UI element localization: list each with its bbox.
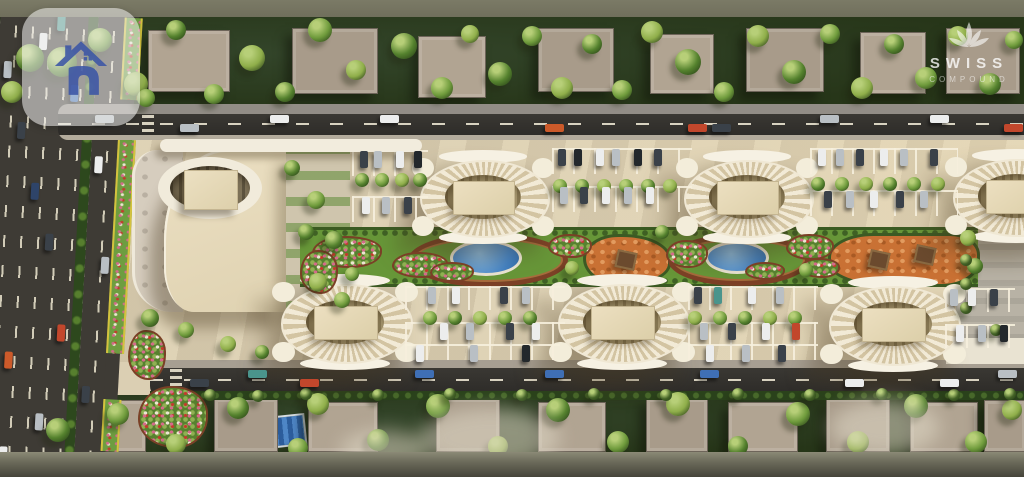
tree <box>732 388 744 400</box>
tree <box>612 80 632 100</box>
parked-car <box>742 345 750 362</box>
tree <box>334 292 350 308</box>
parked-car <box>414 151 422 168</box>
developer-logo-badge <box>22 8 140 126</box>
tree <box>345 267 359 281</box>
tree <box>346 60 366 80</box>
tree <box>960 230 976 246</box>
parked-car <box>818 149 826 166</box>
car <box>35 413 44 430</box>
tree <box>738 311 752 325</box>
car <box>688 124 707 132</box>
tree <box>431 77 453 99</box>
flower-bed <box>786 234 834 260</box>
parked-car <box>824 191 832 208</box>
tree <box>308 18 332 42</box>
parked-car <box>728 323 736 340</box>
tree <box>883 177 897 191</box>
tree <box>227 397 249 419</box>
parked-car <box>362 197 370 214</box>
parking-stalls <box>405 322 565 346</box>
flower-bed <box>745 262 785 280</box>
parked-car <box>1000 325 1008 342</box>
parked-car <box>896 191 904 208</box>
tree <box>948 389 960 401</box>
tree <box>1002 400 1022 420</box>
parked-car <box>522 287 530 304</box>
top-border-band <box>0 0 1024 17</box>
tree <box>141 309 159 327</box>
core-roof <box>591 306 655 341</box>
compound-watermark: SWISS COMPOUND <box>914 22 1024 84</box>
parked-car <box>470 345 478 362</box>
flower-bed <box>430 262 474 282</box>
parked-car <box>978 325 986 342</box>
core-roof <box>453 181 515 215</box>
car <box>1004 124 1023 132</box>
parked-car <box>452 287 460 304</box>
play-canopy <box>614 249 637 271</box>
parked-car <box>404 197 412 214</box>
tree <box>851 77 873 99</box>
tree <box>395 173 409 187</box>
parked-car <box>748 287 756 304</box>
tree <box>675 49 701 75</box>
tree <box>859 177 873 191</box>
parked-car <box>646 187 654 204</box>
car <box>998 370 1017 378</box>
crosswalk <box>170 368 182 386</box>
parked-car <box>560 187 568 204</box>
car <box>100 257 109 274</box>
parked-car <box>612 149 620 166</box>
compound-aerial-render: SWISS COMPOUND <box>0 0 1024 477</box>
tree <box>782 60 806 84</box>
parked-car <box>792 323 800 340</box>
tree <box>607 431 629 453</box>
tree <box>747 25 769 47</box>
residential-building <box>823 281 963 367</box>
tree <box>307 191 325 209</box>
parked-car <box>634 149 642 166</box>
watermark-title: SWISS <box>914 55 1024 72</box>
tree <box>255 345 269 359</box>
parked-car <box>776 287 784 304</box>
tree <box>375 173 389 187</box>
tree <box>413 173 427 187</box>
tree <box>799 263 813 277</box>
parked-car <box>596 149 604 166</box>
tree <box>372 389 384 401</box>
lane-markings <box>150 379 1024 381</box>
tree <box>786 402 810 426</box>
tree <box>204 84 224 104</box>
villa-roof <box>538 28 614 92</box>
parked-car <box>920 191 928 208</box>
roadside-hedge <box>150 391 1024 400</box>
parked-car <box>870 191 878 208</box>
parked-car <box>574 149 582 166</box>
tree <box>298 224 314 240</box>
residential-building <box>948 154 1024 238</box>
parked-car <box>694 287 702 304</box>
north-road <box>58 104 1024 140</box>
car <box>930 115 949 123</box>
car <box>45 233 54 250</box>
parked-car <box>990 289 998 306</box>
car <box>4 351 13 368</box>
sun-haze <box>830 400 940 455</box>
parked-car <box>930 149 938 166</box>
tree <box>565 261 579 275</box>
parked-car <box>506 323 514 340</box>
tree <box>660 389 672 401</box>
tree <box>275 82 295 102</box>
car <box>94 156 103 173</box>
tree <box>166 434 186 454</box>
parked-car <box>950 289 958 306</box>
flower-bed <box>548 234 592 258</box>
tree <box>1 81 23 103</box>
car <box>190 379 209 387</box>
tree <box>220 336 236 352</box>
car <box>820 115 839 123</box>
parked-car <box>532 323 540 340</box>
car <box>380 115 399 123</box>
car <box>17 122 26 139</box>
tree <box>804 389 816 401</box>
car <box>3 61 12 78</box>
parked-car <box>580 187 588 204</box>
tree <box>551 77 573 99</box>
parked-car <box>396 151 404 168</box>
parking-stalls <box>405 344 560 360</box>
tree <box>714 82 734 102</box>
parked-car <box>522 345 530 362</box>
car <box>270 115 289 123</box>
parked-car <box>466 323 474 340</box>
parking-stalls <box>552 148 692 174</box>
tree <box>546 398 570 422</box>
parked-car <box>846 191 854 208</box>
tree <box>488 62 512 86</box>
play-canopy <box>867 249 890 271</box>
bottom-border-band <box>0 452 1024 477</box>
tree <box>355 173 369 187</box>
parked-car <box>714 287 722 304</box>
tree <box>46 418 70 442</box>
tree <box>423 311 437 325</box>
parked-car <box>706 345 714 362</box>
parked-car <box>382 197 390 214</box>
tree <box>473 311 487 325</box>
play-canopy <box>913 244 936 266</box>
residential-building <box>415 155 551 239</box>
tree <box>300 388 312 400</box>
corner-wing <box>820 284 842 305</box>
tree <box>663 179 677 193</box>
parked-car <box>602 187 610 204</box>
tree <box>965 431 987 453</box>
core-roof <box>314 306 378 341</box>
parked-car <box>416 345 424 362</box>
parking-stalls <box>810 190 958 216</box>
car <box>545 370 564 378</box>
mall-core-roof <box>184 170 238 210</box>
tree <box>582 34 602 54</box>
home-n-logo-icon <box>48 30 114 102</box>
parked-car <box>880 149 888 166</box>
tree <box>835 177 849 191</box>
tree <box>876 388 888 400</box>
tree <box>655 225 669 239</box>
flower-bed <box>128 330 166 380</box>
car <box>712 124 731 132</box>
flower-bed <box>666 240 708 268</box>
parked-car <box>558 149 566 166</box>
parked-car <box>778 345 786 362</box>
parked-car <box>360 151 368 168</box>
corner-wing <box>272 282 294 303</box>
tree <box>641 21 663 43</box>
car <box>545 124 564 132</box>
parked-car <box>654 149 662 166</box>
tree <box>204 389 216 401</box>
watermark-subtitle: COMPOUND <box>914 75 1024 84</box>
car <box>845 379 864 387</box>
car <box>940 379 959 387</box>
parked-car <box>700 323 708 340</box>
parked-car <box>900 149 908 166</box>
parked-car <box>428 287 436 304</box>
tree <box>820 24 840 44</box>
parked-car <box>500 287 508 304</box>
lotus-icon <box>945 22 993 48</box>
core-roof <box>717 181 779 215</box>
tree <box>884 34 904 54</box>
car <box>700 370 719 378</box>
tree <box>811 177 825 191</box>
tree <box>107 403 129 425</box>
car <box>81 386 90 403</box>
crosswalk <box>142 114 154 132</box>
car <box>248 370 267 378</box>
tree <box>516 389 528 401</box>
tree <box>461 25 479 43</box>
tree <box>178 322 194 338</box>
tree <box>522 26 542 46</box>
tree <box>325 231 343 249</box>
car <box>57 324 66 341</box>
tree <box>166 20 186 40</box>
tree <box>309 273 327 291</box>
tree <box>391 33 417 59</box>
tree <box>239 45 265 71</box>
parked-car <box>956 325 964 342</box>
tree <box>931 177 945 191</box>
mall-entrance-canopy <box>160 139 422 152</box>
tree <box>444 388 456 400</box>
car <box>300 379 319 387</box>
core-roof <box>862 308 926 343</box>
parked-car <box>856 149 864 166</box>
tree <box>1004 388 1016 400</box>
car <box>180 124 199 132</box>
lane-markings <box>58 123 1024 125</box>
parked-car <box>374 151 382 168</box>
parked-car <box>440 323 448 340</box>
tree <box>448 311 462 325</box>
tree <box>588 388 600 400</box>
parked-car <box>836 149 844 166</box>
parked-car <box>762 323 770 340</box>
car <box>30 183 39 200</box>
villa-roof <box>148 30 230 92</box>
parked-car <box>968 289 976 306</box>
tree <box>713 311 727 325</box>
tree <box>252 390 264 402</box>
villa-roof <box>292 28 378 94</box>
tree <box>960 254 972 266</box>
tree <box>907 177 921 191</box>
parked-car <box>624 187 632 204</box>
tree <box>284 160 300 176</box>
residential-building <box>679 155 815 239</box>
car <box>415 370 434 378</box>
core-roof <box>986 180 1024 214</box>
residential-building <box>552 279 692 365</box>
